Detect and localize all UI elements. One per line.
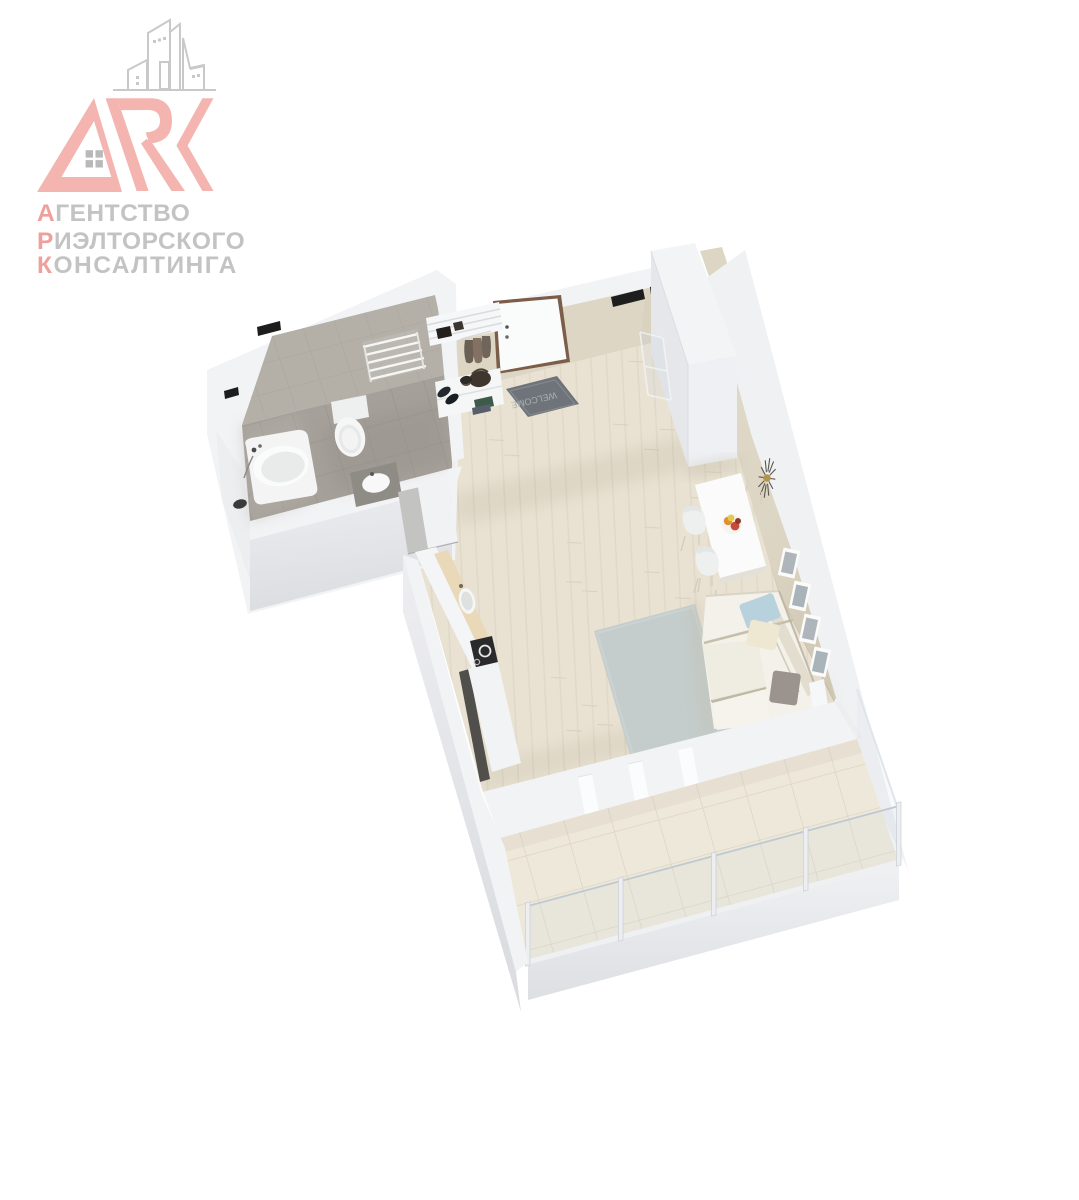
svg-text:КОНСАЛТИНГА: КОНСАЛТИНГА: [37, 252, 238, 279]
svg-text:РИЭЛТОРСКОГО: РИЭЛТОРСКОГО: [37, 228, 245, 255]
svg-text:АГЕНТСТВО: АГЕНТСТВО: [37, 200, 190, 227]
